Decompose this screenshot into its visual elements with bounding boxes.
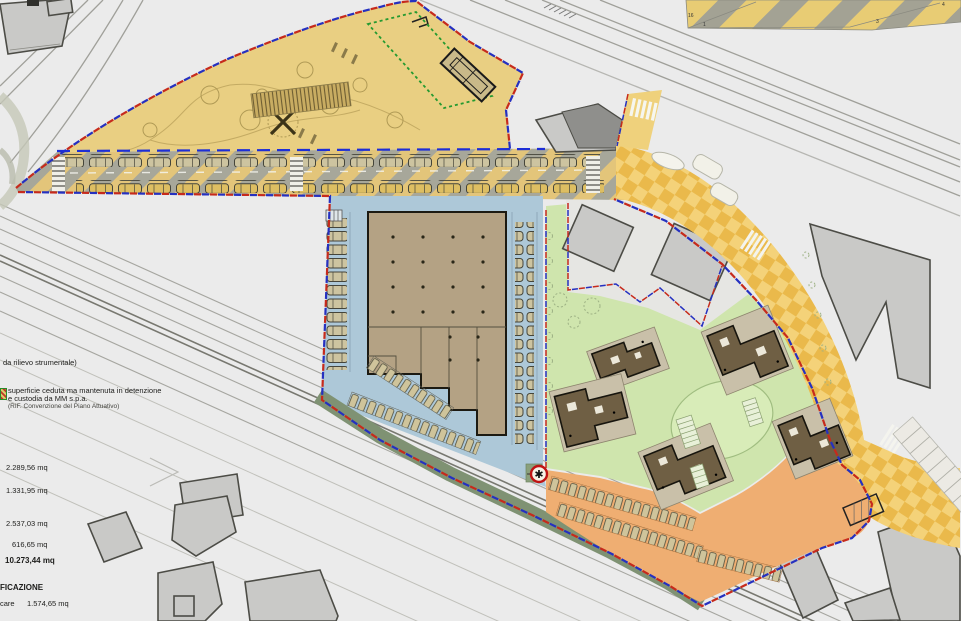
- parcel-number: 4: [942, 2, 945, 8]
- legend-swatch: [0, 388, 7, 400]
- row-value: 1.574,65 mq: [27, 600, 69, 608]
- legend-note: da rilievo strumentale): [3, 359, 77, 367]
- area-value: 2.289,56 mq: [6, 464, 48, 472]
- legend-item-line2: e custodia da MM s.p.a.: [8, 395, 88, 403]
- marker-star: ✱: [534, 469, 543, 481]
- context-building-dark-roof: [536, 104, 622, 152]
- area-total-value: 10.273,44 mq: [5, 557, 55, 565]
- parked-cars-row-bottom: [76, 180, 604, 193]
- parked-cars-row-top: [62, 154, 600, 167]
- parcel-number: 3: [876, 19, 879, 25]
- site-plan-svg: 16 1 3 4: [0, 0, 961, 621]
- context-buildings-topleft: [0, 0, 73, 54]
- road-chevron-mark: [150, 458, 178, 486]
- legend-item-line3: (RIF. Convenzione del Piano Attuativo): [8, 403, 119, 411]
- blue-zone: [322, 196, 546, 487]
- parcel-number: 1: [703, 22, 706, 28]
- row-label-fragment: care: [0, 600, 15, 608]
- area-value: 2.537,03 mq: [6, 520, 48, 528]
- crosswalk-ladder: [52, 157, 65, 191]
- parcel-number: 16: [688, 13, 694, 19]
- section-header-fragment: FICAZIONE: [0, 584, 43, 592]
- area-value: 616,65 mq: [12, 541, 47, 549]
- crosswalk-ladder: [290, 157, 303, 191]
- roof-detail: [27, 0, 39, 6]
- parking-column-right: [515, 222, 534, 444]
- site-plan-page: 16 1 3 4: [0, 0, 961, 621]
- context-buildings-bottomleft: [88, 458, 338, 621]
- crosswalk-ladder: [586, 156, 600, 193]
- area-value: 1.331,95 mq: [6, 487, 48, 495]
- cadastral-parcel-striped: 16 1 3 4: [686, 0, 961, 30]
